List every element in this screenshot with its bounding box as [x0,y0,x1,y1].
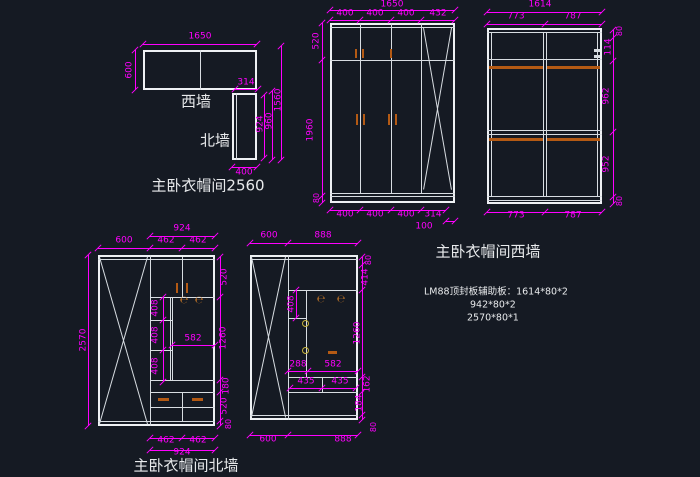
dimension-tick [253,40,260,47]
dimension-tick [277,156,284,163]
dim-label: 462 [157,237,174,246]
handle [390,49,392,58]
dimension-line [487,12,602,13]
cad-line [487,130,602,131]
dim-label: 400 [366,211,383,220]
dim-label: 1260 [220,327,229,350]
handle [395,114,397,125]
dim-label: 80 [370,422,378,432]
cad-line [421,23,422,193]
dim-label: 952 [603,155,612,172]
dim-label: 773 [507,13,524,22]
note-line: 2570*80*1 [467,313,519,323]
cad-line [491,32,492,196]
dim-label: 1260 [354,322,363,345]
note-line: 942*80*2 [470,300,516,310]
dim-label: 1960 [307,119,316,142]
hook-icon: ℮ [337,295,346,305]
dimension-tick [354,431,361,438]
cad-line [288,392,358,393]
dim-label: 162 [364,375,373,392]
cad-line [200,50,201,90]
dim-label: 80 [225,419,233,429]
dim-label: 888 [314,232,331,241]
cad-line [487,196,602,197]
dim-label: 408 [152,357,161,374]
dimension-tick [598,208,605,215]
cad-line [360,23,361,193]
dim-label: 80 [313,193,321,203]
dimension-line [330,20,455,21]
dim-label: 773 [507,212,524,221]
cad-line [330,27,455,28]
handle [355,49,357,58]
cad-line [487,134,602,135]
dim-label: 314 [424,211,441,220]
cabinet-frame [487,28,602,204]
dim-label: 400 [336,211,353,220]
dimension-tick [211,434,218,441]
dim-label: 600 [126,61,135,78]
cad-line [182,257,183,297]
dimension-line [250,243,358,244]
dimension-tick [268,156,275,163]
dimension-tick [442,206,449,213]
dim-label: 435 [331,378,348,387]
dim-label: 432 [429,10,446,19]
dim-label: 600 [115,237,132,246]
dim-label: 180 [223,377,232,394]
dimension-tick [260,154,267,161]
dimension-line [290,388,356,389]
cad-line [330,193,455,194]
dim-label: 184 [356,394,365,411]
dimension-tick [131,86,138,93]
cad-line [98,421,215,422]
plan-title: 主卧衣帽间2560 [151,179,264,194]
dimension-tick [211,232,218,239]
round-knob-icon [302,320,309,327]
dim-label: 960 [266,112,275,129]
north-wall-label: 北墙 [200,134,230,149]
handle [362,49,364,58]
dimension-tick [354,239,361,246]
dim-label: 400 [397,10,414,19]
dim-label: 400 [397,211,414,220]
dimension-line [143,44,257,45]
dimension-tick [451,6,458,13]
cad-line [288,318,306,319]
dim-label: 100 [415,223,432,232]
handle [192,398,203,401]
handle [186,283,188,293]
dimension-line [135,50,136,90]
cad-drawing-canvas: 16506003149249601560400西墙北墙主卧衣帽间25601650… [0,0,700,477]
dimension-line [163,297,164,382]
dim-label: 80 [365,255,373,265]
dim-label: 520 [313,32,322,49]
handle [547,66,600,69]
cad-line [288,255,289,420]
dim-label: 414 [362,268,371,285]
cad-line [487,59,602,60]
dim-label: 1650 [189,33,212,42]
dim-label: 114 [605,38,614,55]
handle [328,351,337,354]
dimension-tick [211,446,218,453]
cad-line [250,415,358,416]
dim-label: 962 [603,87,612,104]
west-wall-label: 西墙 [181,95,211,110]
dim-label: 2570 [80,329,89,352]
handle [388,114,390,125]
cad-line [487,200,602,201]
dim-label: 462 [189,437,206,446]
dim-label: 80 [616,26,624,36]
dim-label: 600 [260,232,277,241]
cad-line [594,49,600,52]
handle [489,138,543,141]
dimension-line [98,248,215,249]
hook-icon: ℮ [317,295,326,305]
cad-line [150,380,215,381]
dim-label: 582 [184,335,201,344]
dim-label: 408 [152,326,161,343]
handle [489,66,543,69]
handle [176,283,178,293]
dim-label: 435 [297,378,314,387]
cabinet-frame [250,255,358,420]
dimension-line [172,345,215,346]
cad-line [330,60,455,61]
cad-line [250,259,358,260]
dim-label: 600 [259,436,276,445]
cad-line [170,297,171,380]
dim-label: 1614 [529,1,552,10]
dimension-tick [598,8,605,15]
handle [363,114,365,125]
dimension-line [322,23,323,203]
west-elevation-title: 主卧衣帽间西墙 [435,245,540,260]
dim-label: 462 [189,237,206,246]
dim-label: 888 [334,436,351,445]
dim-label: 787 [564,212,581,221]
hook-icon: ℮ [180,296,189,306]
dimension-line [288,371,358,372]
cad-line [150,407,215,408]
dim-label: 408 [288,295,297,312]
note-line: LM88顶封板辅助板：1614*80*2 [424,287,568,297]
handle [356,114,358,125]
dimension-line [613,30,614,204]
dim-label: 400 [366,10,383,19]
dim-label: 400 [336,10,353,19]
cad-line [546,32,547,196]
dim-label: 924 [173,225,190,234]
dim-label: 520 [221,397,230,414]
dimension-tick [253,163,260,170]
handle [158,398,169,401]
dim-label: 1560 [275,89,284,112]
dim-label: 582 [324,361,341,370]
dim-label: 787 [564,13,581,22]
dimension-tick [211,244,218,251]
cad-line [172,297,173,380]
cad-line [330,196,455,197]
dim-label: 408 [152,299,161,316]
dim-label: 520 [221,268,230,285]
dimension-tick [84,422,91,429]
dimension-tick [451,16,458,23]
cad-line [236,93,237,160]
dim-label: 288 [289,361,306,370]
cad-line [98,259,215,260]
dimension-tick [598,20,605,27]
cad-line [543,32,544,196]
dim-label: 462 [157,437,174,446]
dim-label: 80 [616,196,624,206]
north-elevation-title: 主卧衣帽间北墙 [133,459,238,474]
cad-line [288,290,358,291]
handle [547,138,600,141]
hook-icon: ℮ [195,296,204,306]
cad-line [487,32,602,33]
round-knob-icon [302,347,309,354]
dim-label: 314 [237,79,254,88]
dimension-tick [451,217,458,224]
cad-line [594,55,600,58]
